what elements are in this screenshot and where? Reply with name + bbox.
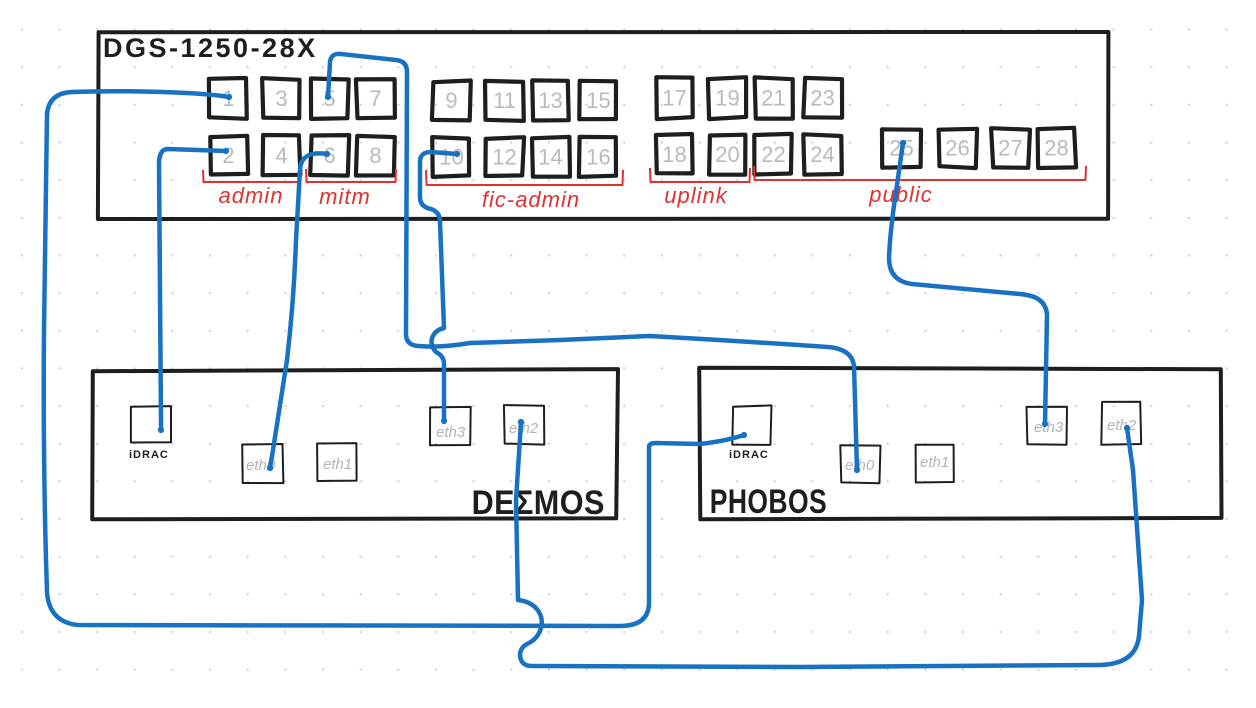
svg-text:24: 24 — [810, 142, 834, 167]
svg-text:eth2: eth2 — [1107, 417, 1137, 434]
svg-text:PHOBOS: PHOBOS — [710, 483, 827, 521]
svg-text:eth0: eth0 — [845, 457, 875, 474]
svg-text:28: 28 — [1044, 136, 1068, 161]
svg-text:15: 15 — [586, 88, 610, 113]
svg-text:public: public — [868, 182, 932, 207]
svg-text:18: 18 — [662, 142, 686, 167]
svg-text:17: 17 — [662, 86, 686, 111]
svg-text:21: 21 — [761, 86, 785, 111]
svg-text:22: 22 — [761, 142, 785, 167]
svg-text:12: 12 — [492, 145, 516, 170]
svg-text:eth1: eth1 — [920, 454, 949, 471]
svg-text:4: 4 — [275, 143, 287, 168]
svg-text:8: 8 — [369, 143, 381, 168]
svg-text:eth3: eth3 — [436, 424, 466, 441]
svg-text:19: 19 — [715, 86, 739, 111]
svg-text:mitm: mitm — [319, 184, 371, 209]
svg-text:10: 10 — [439, 145, 463, 170]
svg-text:26: 26 — [945, 136, 969, 161]
svg-text:13: 13 — [538, 88, 562, 113]
svg-text:iDRAC: iDRAC — [729, 449, 769, 461]
svg-text:admin: admin — [219, 183, 284, 208]
svg-text:27: 27 — [998, 136, 1022, 161]
svg-text:23: 23 — [810, 86, 834, 111]
svg-text:DEΣMOS: DEΣMOS — [472, 484, 605, 522]
svg-text:iDRAC: iDRAC — [129, 449, 169, 461]
svg-text:14: 14 — [538, 145, 562, 170]
svg-text:eth3: eth3 — [1034, 419, 1064, 436]
svg-text:2: 2 — [222, 143, 234, 168]
svg-text:7: 7 — [369, 86, 381, 111]
svg-text:eth1: eth1 — [323, 456, 352, 473]
svg-text:16: 16 — [586, 145, 610, 170]
svg-text:20: 20 — [715, 142, 739, 167]
svg-text:fic-admin: fic-admin — [482, 187, 580, 212]
svg-text:11: 11 — [493, 88, 516, 113]
svg-text:9: 9 — [445, 88, 457, 113]
svg-text:3: 3 — [275, 86, 287, 111]
svg-text:DGS-1250-28X: DGS-1250-28X — [103, 33, 318, 63]
svg-text:uplink: uplink — [664, 183, 727, 208]
